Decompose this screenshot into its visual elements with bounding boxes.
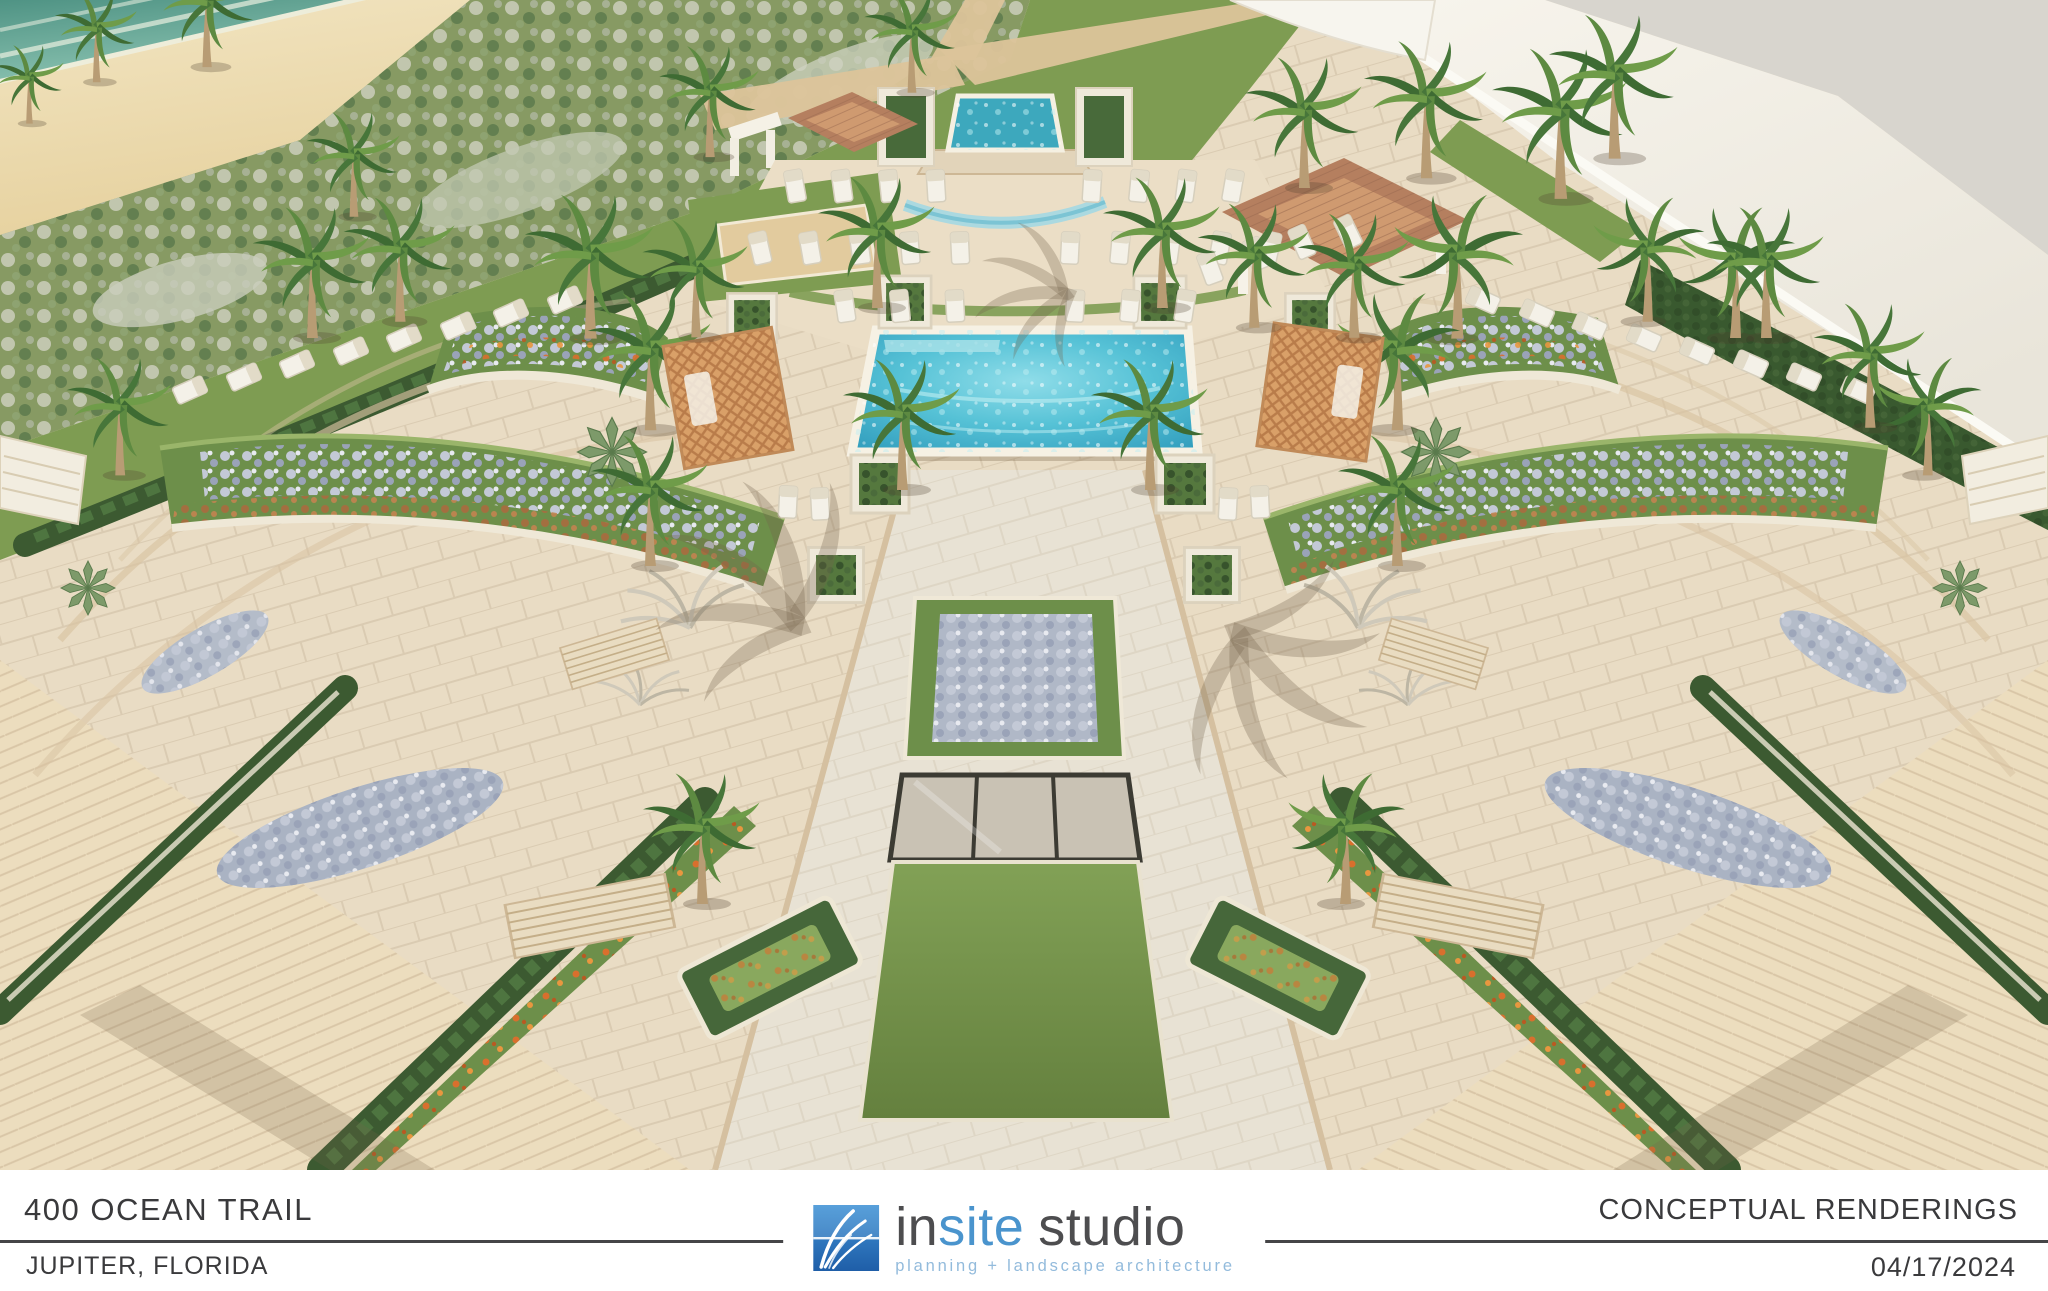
pool-steps bbox=[884, 340, 1000, 352]
presentation-sheet: 400 OCEAN TRAIL JUPITER, FLORIDA CONCEPT… bbox=[0, 0, 2048, 1291]
central-flower-bed bbox=[905, 598, 1124, 758]
logo-word-in: in bbox=[895, 1197, 938, 1257]
project-name: 400 OCEAN TRAIL bbox=[24, 1192, 313, 1228]
sheet-title: CONCEPTUAL RENDERINGS bbox=[1598, 1194, 2018, 1227]
logo-wordmark: insitestudio bbox=[895, 1200, 1235, 1254]
logo-text: insitestudio planning + landscape archit… bbox=[895, 1200, 1235, 1276]
project-location: JUPITER, FLORIDA bbox=[26, 1252, 268, 1281]
logo-mark-icon bbox=[813, 1205, 879, 1271]
sheet-date: 04/17/2024 bbox=[1871, 1252, 2016, 1283]
skylight-panels bbox=[890, 775, 1140, 860]
rendering-image bbox=[0, 0, 2048, 1170]
logo-tagline: planning + landscape architecture bbox=[895, 1257, 1235, 1276]
title-block: 400 OCEAN TRAIL JUPITER, FLORIDA CONCEPT… bbox=[0, 1170, 2048, 1291]
central-lawn-panel bbox=[860, 862, 1172, 1120]
insite-studio-logo: insitestudio planning + landscape archit… bbox=[783, 1194, 1265, 1282]
conceptual-rendering-svg bbox=[0, 0, 2048, 1170]
logo-word-studio: studio bbox=[1038, 1197, 1185, 1257]
logo-word-site: site bbox=[938, 1197, 1024, 1257]
cabana-left bbox=[663, 327, 793, 468]
cabana-right bbox=[1257, 323, 1383, 461]
